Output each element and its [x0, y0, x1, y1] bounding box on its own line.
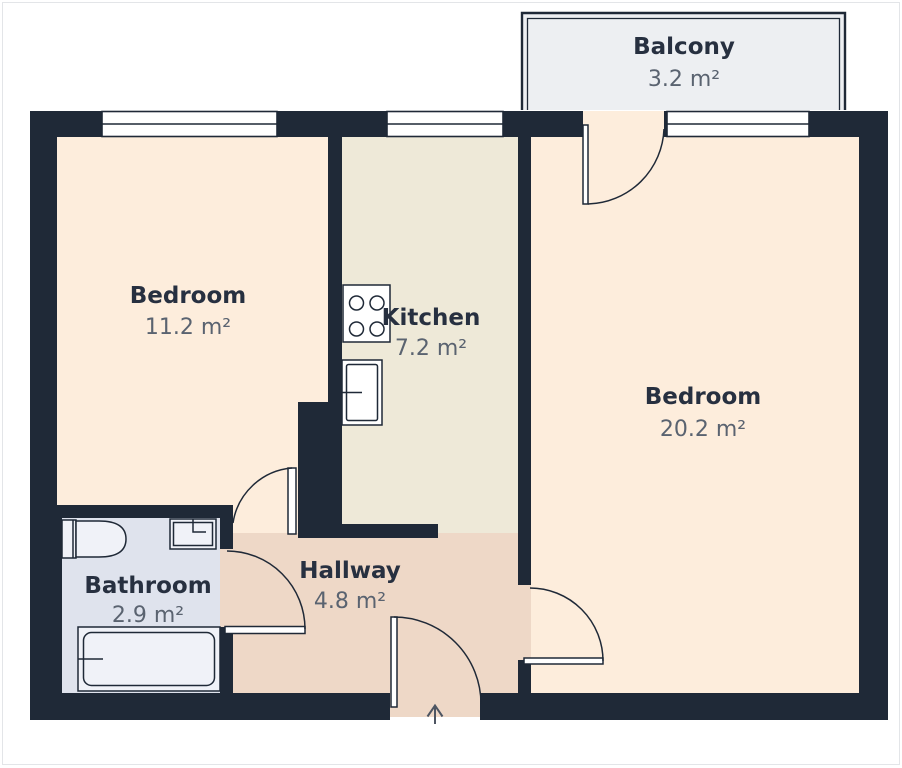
wall-segment — [480, 693, 888, 720]
wall-segment — [30, 693, 390, 720]
window-icon — [667, 112, 809, 137]
kitchen-sink-icon — [342, 360, 382, 425]
wall-segment — [220, 627, 233, 693]
bathroom-sink-icon — [170, 519, 216, 549]
wall-segment — [277, 111, 387, 137]
windows — [102, 112, 809, 137]
balcony-floor — [522, 12, 846, 110]
room-area-kitchen: 7.2 m² — [395, 336, 467, 361]
room-area-bedroom-1: 11.2 m² — [145, 315, 231, 340]
room-area-bedroom-2: 20.2 m² — [660, 417, 746, 442]
balcony — [522, 12, 846, 110]
bathtub-icon — [78, 627, 220, 691]
floor-plan-canvas: Balcony Bedroom Kitchen Bedroom Bathroom… — [0, 0, 902, 768]
wall-segment — [503, 111, 583, 137]
wall-segment — [220, 505, 233, 549]
room-label-bathroom: Bathroom — [84, 573, 211, 599]
wall-segment — [338, 524, 438, 538]
door-leaf — [288, 468, 296, 534]
wall-segment — [859, 111, 888, 720]
room-label-hallway: Hallway — [299, 558, 401, 584]
wall-segment — [328, 137, 342, 402]
room-area-balcony: 3.2 m² — [648, 67, 720, 92]
window-icon — [387, 112, 503, 137]
door-leaf — [524, 658, 603, 664]
toilet-icon — [62, 520, 126, 558]
door-leaf — [583, 125, 588, 204]
wall-segment — [298, 402, 342, 538]
room-label-balcony: Balcony — [633, 34, 735, 60]
wall-segment — [30, 111, 57, 720]
wall-segment — [518, 137, 531, 585]
room-label-bedroom-2: Bedroom — [645, 384, 762, 410]
window-icon — [102, 112, 277, 137]
wall-segment — [518, 660, 531, 693]
door-leaf — [225, 627, 305, 634]
wall-segment — [57, 505, 233, 518]
room-area-bathroom: 2.9 m² — [112, 603, 184, 628]
room-area-hallway: 4.8 m² — [314, 589, 386, 614]
room-label-bedroom-1: Bedroom — [130, 283, 247, 309]
floor-plan: Balcony Bedroom Kitchen Bedroom Bathroom… — [0, 0, 902, 768]
door-leaf — [391, 617, 397, 707]
room-label-kitchen: Kitchen — [382, 305, 481, 331]
